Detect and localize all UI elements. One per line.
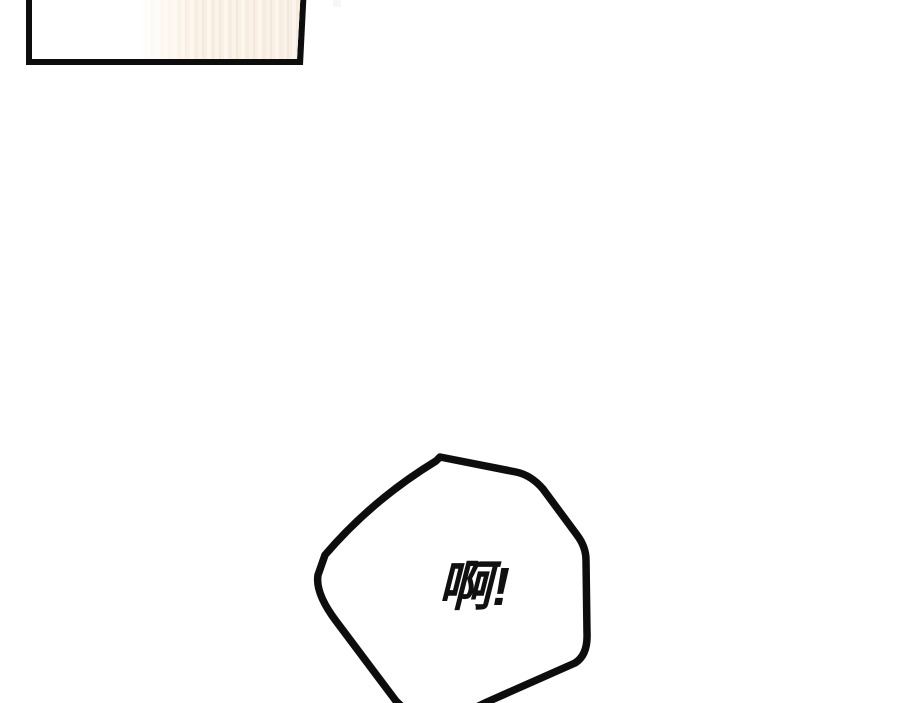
speech-bubble-text: 啊! — [374, 556, 574, 618]
comic-page: 啊! — [0, 0, 900, 703]
